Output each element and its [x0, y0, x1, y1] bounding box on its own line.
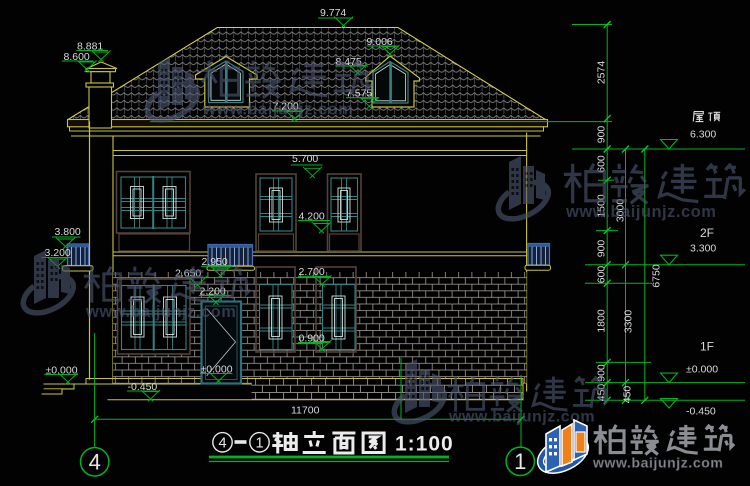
- svg-text:2.700: 2.700: [299, 266, 325, 278]
- svg-text:5.700: 5.700: [292, 153, 318, 165]
- svg-text:900: 900: [596, 240, 608, 258]
- svg-text:450: 450: [622, 386, 634, 404]
- svg-text:4: 4: [89, 450, 101, 475]
- svg-text:-0.450: -0.450: [128, 381, 158, 393]
- svg-text:±0.000: ±0.000: [46, 364, 78, 376]
- svg-text:2F: 2F: [700, 226, 714, 240]
- svg-text:www.baijunjz.com: www.baijunjz.com: [85, 303, 236, 321]
- svg-text:8.600: 8.600: [64, 51, 90, 63]
- svg-text:www.baijunjz.com: www.baijunjz.com: [565, 203, 716, 221]
- svg-text:±0.000: ±0.000: [686, 364, 718, 376]
- svg-text:1800: 1800: [596, 309, 608, 333]
- svg-text:9.774: 9.774: [320, 7, 346, 19]
- svg-text:±0.000: ±0.000: [201, 363, 233, 375]
- svg-text:1: 1: [514, 449, 526, 474]
- svg-text:2574: 2574: [596, 61, 608, 85]
- svg-text:4: 4: [218, 435, 226, 451]
- svg-text:www.baijunjz.com: www.baijunjz.com: [202, 101, 353, 119]
- svg-text:4.200: 4.200: [299, 210, 325, 222]
- svg-text:www.baijunjz.com: www.baijunjz.com: [448, 409, 595, 426]
- svg-text:1: 1: [255, 435, 263, 451]
- svg-text:2.950: 2.950: [202, 256, 228, 268]
- svg-text:6.300: 6.300: [690, 129, 716, 141]
- svg-text:-0.450: -0.450: [686, 406, 716, 418]
- svg-text:11700: 11700: [291, 405, 320, 417]
- svg-text:600: 600: [596, 266, 608, 284]
- svg-text:www.baijunjz.com: www.baijunjz.com: [592, 455, 723, 471]
- svg-text:1:100: 1:100: [395, 433, 454, 456]
- svg-text:1F: 1F: [700, 340, 714, 354]
- svg-text:900: 900: [596, 126, 608, 144]
- svg-text:3.800: 3.800: [55, 226, 81, 238]
- svg-text:0.900: 0.900: [299, 332, 325, 344]
- svg-text:3.300: 3.300: [690, 243, 716, 255]
- svg-text:9.006: 9.006: [367, 36, 393, 48]
- svg-text:6750: 6750: [651, 264, 663, 288]
- svg-text:3300: 3300: [623, 310, 635, 334]
- svg-text:3.200: 3.200: [45, 247, 71, 259]
